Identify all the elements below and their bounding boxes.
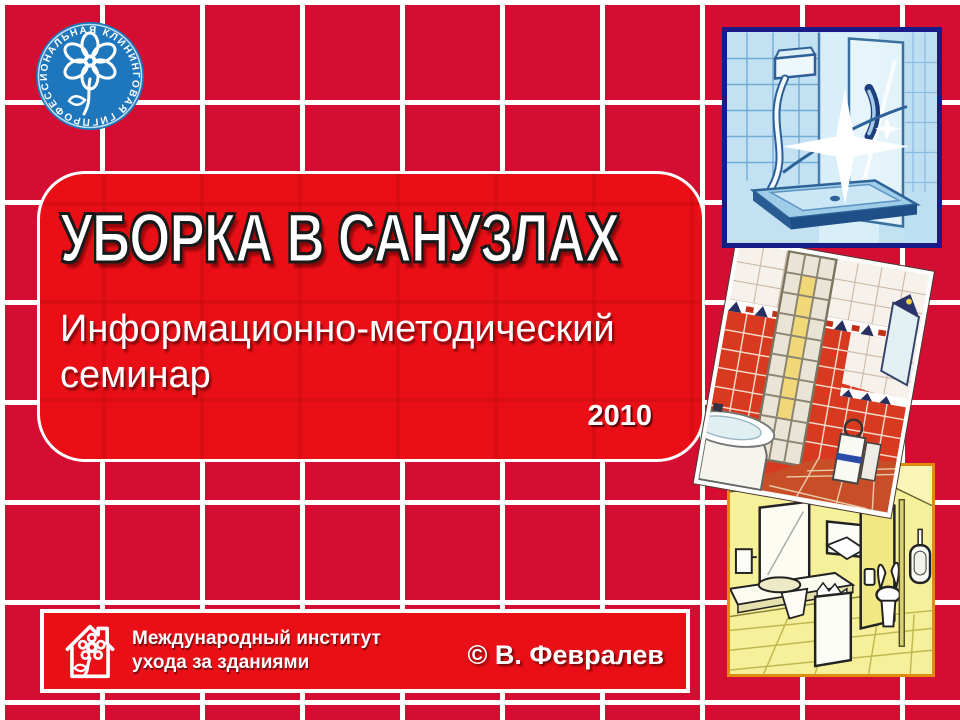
presentation-slide: ПРОФЕССИОНАЛЬНАЯ КЛИНИНГОВАЯ ГИГИЕНА УБО… xyxy=(0,0,960,720)
year-label: 2010 xyxy=(587,400,652,433)
cleaning-hygiene-logo-icon: ПРОФЕССИОНАЛЬНАЯ КЛИНИНГОВАЯ ГИГИЕНА xyxy=(34,20,146,132)
slide-subtitle: Информационно-методический семинар xyxy=(60,306,670,399)
building-care-logo-icon xyxy=(62,620,118,682)
footer-bar: Международный институт ухода за зданиями… xyxy=(40,609,690,693)
shower-cabin-illustration xyxy=(722,27,942,248)
shower-cabin-drawing xyxy=(727,32,937,243)
slide-title: УБОРКА В САНУЗЛАХ xyxy=(60,198,574,277)
tiled-bathroom-drawing xyxy=(698,242,929,514)
title-panel: УБОРКА В САНУЗЛАХ Информационно-методиче… xyxy=(37,171,705,462)
copyright-label: © В. Февралев xyxy=(468,640,664,671)
institute-name-line2: ухода за зданиями xyxy=(132,651,381,675)
tiled-bathroom-illustration xyxy=(694,237,934,518)
institute-name-line1: Международный институт xyxy=(132,627,381,651)
institute-name: Международный институт ухода за зданиями xyxy=(132,627,381,675)
